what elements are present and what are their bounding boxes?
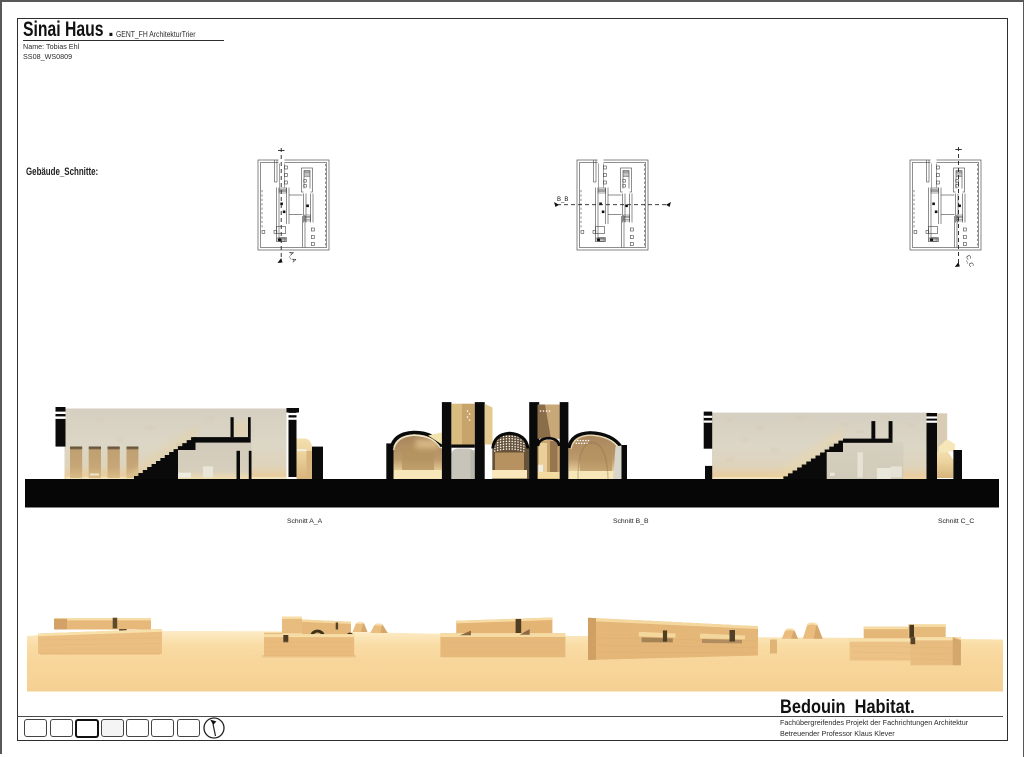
svg-text:B_B: B_B <box>557 197 568 203</box>
svg-text:A_A: A_A <box>287 251 297 264</box>
svg-text:C_C: C_C <box>964 255 974 269</box>
